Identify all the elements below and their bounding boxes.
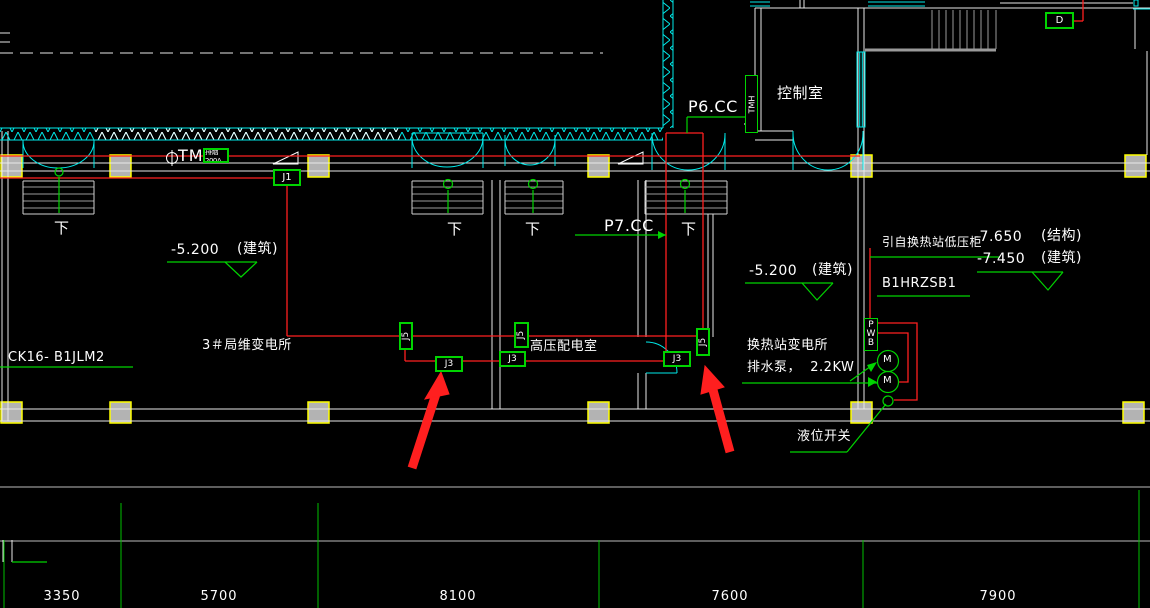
stair-down-label-4: 下 bbox=[681, 222, 697, 238]
tmh-vertical-box: TMH bbox=[745, 75, 758, 133]
dimension-8100: 8100 bbox=[439, 589, 476, 604]
junction-box-j5-2: J5 bbox=[514, 322, 529, 348]
structural-columns bbox=[1, 155, 1146, 423]
walls bbox=[0, 0, 1150, 562]
junction-box-j5-3: J5 bbox=[696, 328, 710, 356]
elevation-arch-value: -7.450 bbox=[977, 252, 1025, 267]
elevation-mid-kind: (建筑) bbox=[812, 263, 853, 278]
pwb-label: PWB bbox=[867, 321, 876, 348]
motor-label-2: M bbox=[883, 376, 892, 387]
elevation-left-value: -5.200 bbox=[171, 243, 219, 258]
room-label-hx-line1: 换热站变电所 bbox=[747, 339, 828, 353]
dimension-7900: 7900 bbox=[979, 589, 1016, 604]
dashed-grid-line bbox=[0, 33, 603, 53]
j5-label: J5 bbox=[516, 331, 526, 339]
hatched-wall-band bbox=[0, 0, 673, 140]
motor-label-1: M bbox=[883, 355, 892, 366]
label-cable-ck16: CK16- B1JLM2 bbox=[8, 351, 105, 365]
junction-box-j5-1: J5 bbox=[399, 322, 413, 350]
elevation-left-kind: (建筑) bbox=[237, 242, 278, 257]
stair-down-label-3: 下 bbox=[525, 222, 541, 238]
stair-down-label-2: 下 bbox=[447, 222, 463, 238]
j5-label: J5 bbox=[698, 338, 708, 346]
tmh-vertical-label: TMH bbox=[747, 95, 756, 113]
doors-and-window bbox=[23, 0, 1150, 373]
room-label-hv: 高压配电室 bbox=[530, 340, 598, 354]
pwb-box: PWB bbox=[864, 318, 878, 351]
dimension-7600: 7600 bbox=[711, 589, 748, 604]
device-box-d: D bbox=[1045, 12, 1074, 29]
room-label-control: 控制室 bbox=[777, 86, 824, 102]
room-label-hx-line2: 排水泵， 2.2KW bbox=[747, 361, 854, 375]
stairs bbox=[23, 10, 996, 214]
tmh-tag-box: 排烟200A bbox=[203, 148, 229, 163]
junction-box-j3-1: J3 bbox=[435, 356, 463, 372]
junction-box-j3-3: J3 bbox=[663, 351, 691, 367]
label-level-switch: 液位开关 bbox=[797, 430, 851, 444]
junction-box-j3-2: J3 bbox=[499, 351, 526, 367]
dimension-lines bbox=[4, 490, 1139, 608]
label-feeder: 引自换热站低压柜 bbox=[882, 236, 982, 249]
label-panel-b1hrzsb1: B1HRZSB1 bbox=[882, 277, 956, 291]
dimension-3350: 3350 bbox=[43, 589, 80, 604]
red-annotation-arrows bbox=[412, 366, 730, 468]
junction-box-j1: J1 bbox=[273, 169, 301, 186]
elevation-arch-kind: (建筑) bbox=[1041, 251, 1082, 266]
j5-label: J5 bbox=[401, 332, 411, 340]
circuit-label-p6: P6.CC bbox=[688, 99, 738, 116]
dimension-5700: 5700 bbox=[200, 589, 237, 604]
stair-down-label-1: 下 bbox=[54, 221, 70, 237]
circuit-label-p7: P7.CC bbox=[604, 218, 654, 235]
elevation-structural-kind: (结构) bbox=[1041, 229, 1082, 244]
cad-drawing-viewport: 控制室 高压配电室 3＃局维变电所 换热站变电所 排水泵， 2.2KW 液位开关… bbox=[0, 0, 1150, 608]
elevation-mid-value: -5.200 bbox=[749, 264, 797, 279]
elevation-structural-value: -7.650 bbox=[974, 230, 1022, 245]
room-label-sub3: 3＃局维变电所 bbox=[202, 339, 292, 353]
drawing-canvas bbox=[0, 0, 1150, 608]
